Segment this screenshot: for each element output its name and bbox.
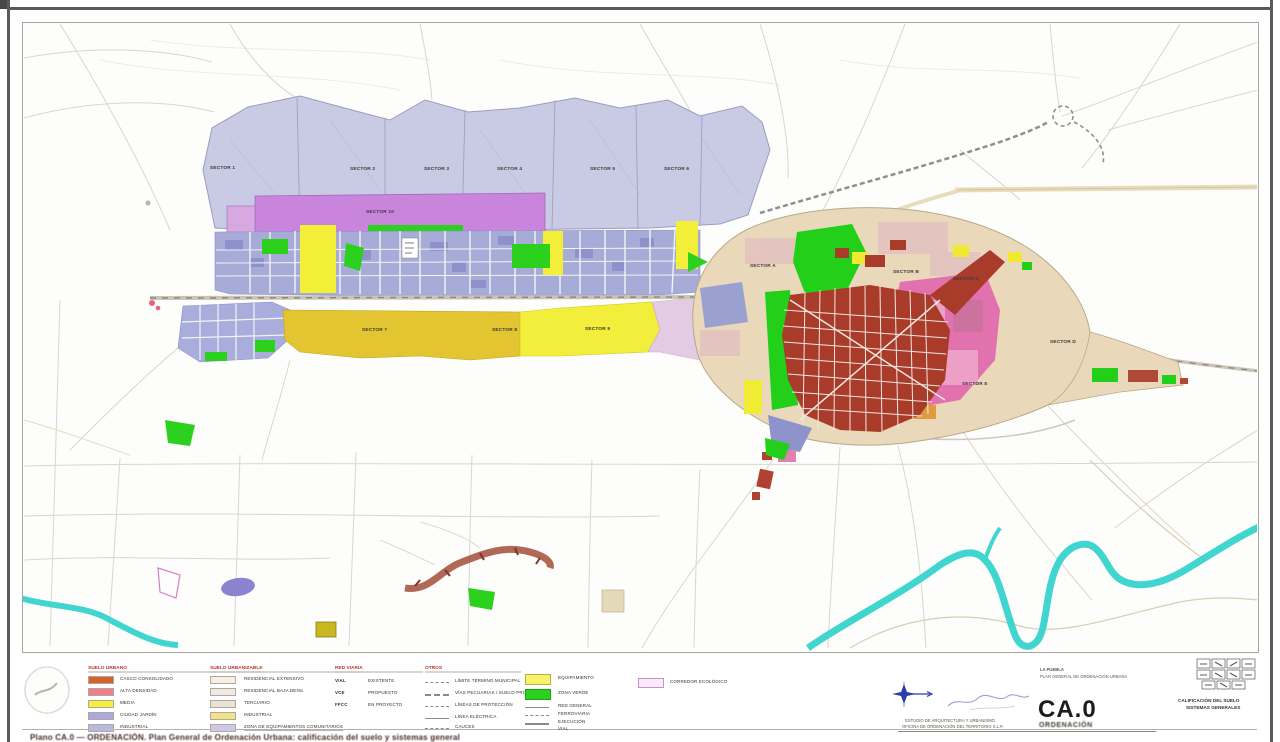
legend-line-symbol — [425, 728, 449, 729]
sheet-title-line1: CALIFICACIÓN DEL SUELO — [1178, 699, 1240, 704]
legend-label: LÍMITE TÉRMINO MUNICIPAL — [455, 679, 520, 684]
legend-label: LÍNEA ELÉCTRICA — [455, 715, 497, 720]
legend-swatch — [88, 676, 114, 684]
legend-line-symbol — [525, 715, 549, 716]
sheet-caption: Plano CA.0 — ORDENACIÓN. Plan General de… — [30, 733, 460, 742]
publisher-logo — [1196, 658, 1260, 694]
legend-swatch — [210, 688, 236, 696]
legend-header-otros: OTROS — [425, 666, 521, 672]
sector-label: SECTOR B — [893, 270, 919, 275]
legend-line-symbol — [425, 694, 449, 696]
legend-label: ALTA DENSIDAD — [120, 689, 157, 694]
sector-label: SECTOR 9 — [585, 327, 610, 332]
legend-line-symbol — [425, 682, 449, 683]
sector-label: SECTOR D — [1050, 340, 1076, 345]
legend-code: VCE — [335, 691, 345, 696]
legend-label: EQUIPAMIENTO — [558, 676, 594, 681]
legend-label: RESIDENCIAL BAJA DENS. — [244, 689, 304, 694]
legend-swatch — [210, 676, 236, 684]
sector-label: SECTOR 10 — [366, 210, 394, 215]
north-arrow-icon — [22, 664, 72, 716]
sector-label: SECTOR C — [953, 277, 979, 282]
sector-label: SECTOR A — [750, 264, 776, 269]
legend-label: EN PROYECTO — [368, 703, 402, 708]
sector-label: SECTOR E — [962, 382, 988, 387]
legend-label: RED GENERAL — [558, 704, 592, 709]
legend-label: VIAL — [558, 727, 568, 732]
map-sheet: SECTOR 1 SECTOR 2 SECTOR 3 SECTOR 4 SECT… — [0, 0, 1280, 742]
sector-label: SECTOR 6 — [664, 167, 689, 172]
sector-label: SECTOR 3 — [424, 167, 449, 172]
legend-swatch — [210, 700, 236, 708]
legend-label: INDUSTRIAL — [244, 713, 272, 718]
legend-label: ZONA VERDE — [558, 691, 589, 696]
legend-label: RESIDENCIAL EXTENSIVO — [244, 677, 304, 682]
legend-label: CORREDOR ECOLÓGICO — [670, 680, 727, 685]
sheet-divider — [22, 729, 1257, 730]
sector-label: SECTOR 5 — [590, 167, 615, 172]
legend-line-symbol — [525, 723, 549, 725]
legend-label: FERROVIARIA — [558, 712, 590, 717]
sector-label: SECTOR 1 — [210, 166, 235, 171]
title-rule — [898, 731, 1036, 732]
plan-code-subtitle: ORDENACIÓN — [1039, 722, 1093, 729]
legend-header-viario: RED VIARIA — [335, 666, 423, 672]
legend-swatch-corridor — [638, 678, 664, 688]
legend-label: EXISTENTE — [368, 679, 394, 684]
title-rule — [1036, 731, 1156, 732]
legend-label: CIUDAD JARDÍN — [120, 713, 157, 718]
legend-label: TERCIARIO — [244, 701, 270, 706]
consultant-line1: ESTUDIO DE ARQUITECTURA Y URBANISMO — [905, 719, 995, 723]
signature-script — [940, 688, 1035, 714]
sector-label: SECTOR 8 — [492, 328, 517, 333]
project-line1: LA PUEBLA — [1040, 668, 1064, 672]
consultant-logo-icon — [890, 682, 936, 708]
legend-swatch — [88, 724, 114, 732]
legend-label: LÍNEAS DE PROTECCIÓN — [455, 703, 513, 708]
legend-label: EJECUCIÓN — [558, 720, 585, 725]
legend-swatch — [525, 689, 551, 700]
project-line2: PLAN GENERAL DE ORDENACIÓN URBANA — [1040, 675, 1127, 679]
legend-label: PROPUESTO — [368, 691, 398, 696]
sheet-title-line2: SISTEMAS GENERALES — [1186, 706, 1240, 711]
legend-label: CASCO CONSOLIDADO — [120, 677, 173, 682]
legend-label: CAUCES — [455, 725, 475, 730]
legend-code: VIAL — [335, 679, 346, 684]
legend-swatch — [88, 700, 114, 708]
legend-swatch — [525, 674, 551, 685]
legend-swatch — [210, 724, 236, 732]
legend-swatch — [88, 688, 114, 696]
legend-line-symbol — [425, 718, 449, 719]
legend-label: MEDIA — [120, 701, 135, 706]
legend-line-symbol — [425, 706, 449, 707]
legend-swatch — [88, 712, 114, 720]
legend-label: INDUSTRIAL — [120, 725, 148, 730]
legend-line-symbol — [525, 707, 549, 708]
map-frame — [22, 22, 1259, 653]
sector-label: SECTOR 7 — [362, 328, 387, 333]
legend-swatch — [210, 712, 236, 720]
sector-label: SECTOR 4 — [497, 167, 522, 172]
legend-code: FFCC — [335, 703, 348, 708]
legend-label: ZONA DE EQUIPAMIENTOS COMUNITARIOS — [244, 725, 343, 731]
sector-label: SECTOR 2 — [350, 167, 375, 172]
consultant-line2: OFICINA DE ORDENACIÓN DEL TERRITORIO S.L… — [902, 725, 1004, 729]
plan-code: CA.0 — [1038, 696, 1097, 724]
